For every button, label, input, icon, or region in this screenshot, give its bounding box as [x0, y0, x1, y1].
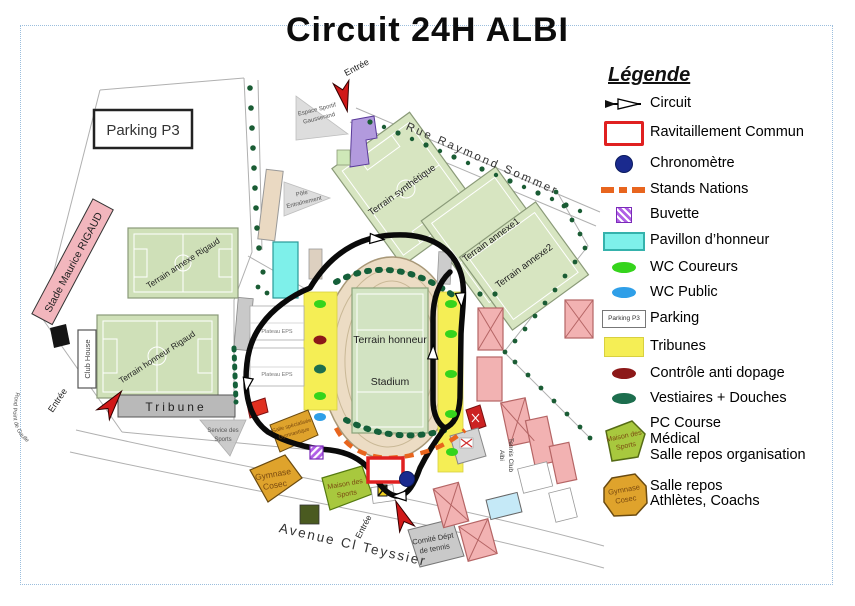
legend-label-line: Athlètes, Coachs [650, 494, 760, 510]
buvette-icon [598, 207, 650, 223]
stadium-field [352, 288, 428, 433]
plateau-eps-label-1: Plateau EPS [261, 329, 293, 335]
tribunes-icon [598, 337, 650, 357]
legend-label: Circuit [650, 96, 691, 112]
legend-item-stands-nations: Stands Nations [598, 182, 850, 198]
legend-label: Stands Nations [650, 182, 748, 198]
legend-label: Buvette [650, 207, 699, 223]
tennis-club-label-1: Tennis Club [507, 438, 514, 472]
legend-label: Chronomètre [650, 156, 735, 172]
legend-label: PC Course Médical Salle repos organisati… [650, 416, 806, 464]
avenue-cl-teyssier-label: Avenue Cl Teyssier [278, 520, 429, 569]
tribune-label: Tribune [145, 400, 206, 414]
legend-panel: Légende Circuit Ravitaillement Commun Ch… [598, 64, 850, 525]
legend-item-vestiaires: Vestiaires + Douches [598, 391, 850, 407]
legend-item-salle-repos: Gymnase Cosec Salle repos Athlètes, Coac… [598, 469, 850, 519]
stands-nations-icon [598, 186, 650, 194]
pc-course-icon: Maison des Sports [598, 417, 650, 463]
ravitaillement-icon [598, 121, 650, 146]
plateau-eps-label-2: Plateau EPS [261, 372, 293, 378]
legend-item-wc-coureurs: WC Coureurs [598, 260, 850, 276]
legend-label: Pavillon d’honneur [650, 233, 769, 249]
legend-label-line: Salle repos organisation [650, 448, 806, 464]
tennis-club-label-2: Albi [498, 450, 505, 461]
legend-label: Salle repos Athlètes, Coachs [650, 479, 760, 511]
pavillon-icon [598, 232, 650, 251]
ravitaillement-zone [368, 458, 403, 482]
stadium-label-2: Stadium [371, 376, 410, 388]
chronometre-dot [400, 472, 415, 487]
legend-item-parking: Parking P3 Parking [598, 310, 850, 328]
legend-label: WC Coureurs [650, 260, 738, 276]
stade-maurice-rigaud-label: Stade Maurice RIGAUD [42, 210, 105, 314]
legend-label-line: Médical [650, 432, 806, 448]
parking-icon: Parking P3 [598, 310, 650, 328]
parking-p3-box: Parking P3 [94, 110, 192, 148]
entree-left-label: Entrée [46, 387, 69, 415]
buvette-square [310, 446, 323, 459]
rond-point-label: Rond Point de Gaulle [11, 392, 30, 444]
club-house-label: Club House [83, 339, 92, 378]
legend-label: Tribunes [650, 339, 706, 355]
tree-hedge-left [234, 348, 236, 402]
legend-label-line: PC Course [650, 416, 806, 432]
service-sports-label-1: Service des [207, 428, 238, 434]
controle-dopage-icon [598, 368, 650, 379]
legend-label: Parking [650, 311, 699, 327]
vestiaires-icon [598, 393, 650, 404]
stadium-label-1: Terrain honneur [353, 334, 427, 346]
legend-title: Légende [608, 64, 850, 87]
legend-label: Vestiaires + Douches [650, 391, 787, 407]
circuit-icon [598, 97, 650, 111]
wc-public-icon [598, 287, 650, 298]
wc-coureurs-icon [598, 262, 650, 273]
legend-item-buvette: Buvette [598, 207, 850, 223]
legend-item-circuit: Circuit [598, 96, 850, 112]
legend-item-chronometre: Chronomètre [598, 155, 850, 173]
chronometre-icon [598, 155, 650, 173]
legend-item-pavillon: Pavillon d’honneur [598, 232, 850, 251]
legend-item-tribunes: Tribunes [598, 337, 850, 357]
entree-top-label: Entrée [343, 57, 371, 78]
legend-item-pc-course: Maison des Sports PC Course Médical Sall… [598, 416, 850, 464]
legend-label: Contrôle anti dopage [650, 366, 785, 382]
legend-label: Ravitaillement Commun [650, 125, 804, 141]
legend-item-wc-public: WC Public [598, 285, 850, 301]
service-sports-label-2: Sports [214, 437, 231, 443]
legend-label: WC Public [650, 285, 718, 301]
legend-item-controle: Contrôle anti dopage [598, 366, 850, 382]
parking-icon-text: Parking P3 [602, 310, 646, 328]
salle-repos-icon: Gymnase Cosec [598, 469, 650, 519]
stade-maurice-rigaud-banner: Stade Maurice RIGAUD [32, 199, 113, 325]
legend-item-ravitaillement: Ravitaillement Commun [598, 121, 850, 146]
parking-p3-label: Parking P3 [106, 122, 179, 139]
entree-bottom-label: Entrée [353, 513, 374, 540]
legend-label-line: Salle repos [650, 479, 760, 495]
